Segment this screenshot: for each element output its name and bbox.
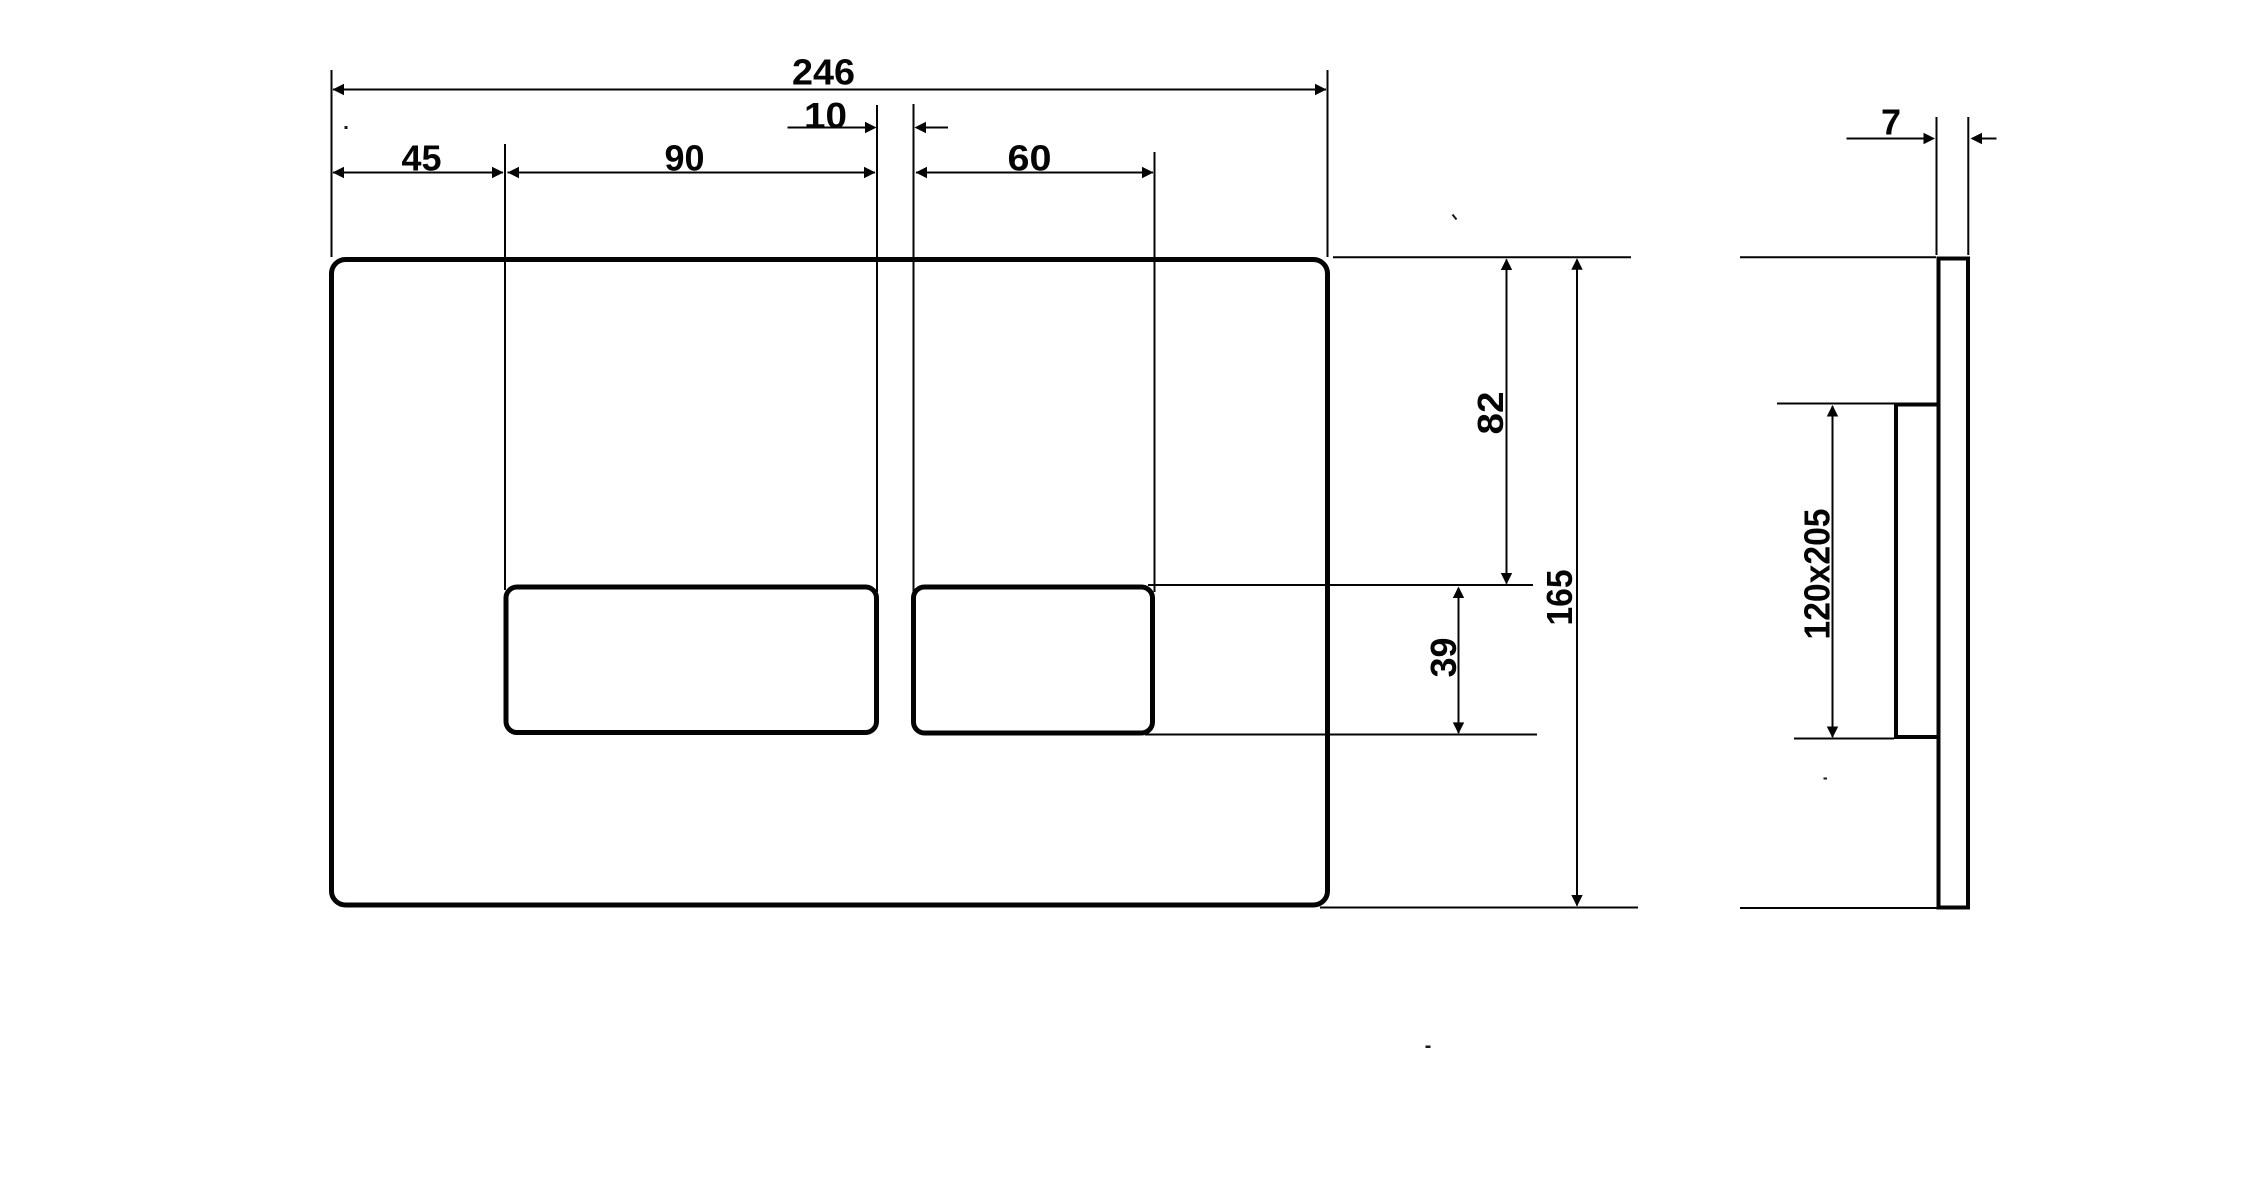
svg-text:7: 7: [1881, 102, 1901, 143]
svg-text:39: 39: [1423, 638, 1464, 678]
svg-text:90: 90: [665, 137, 705, 178]
svg-text:45: 45: [402, 137, 442, 178]
svg-text:120x205: 120x205: [1797, 509, 1838, 640]
svg-text:10: 10: [804, 95, 847, 136]
svg-text:246: 246: [792, 51, 855, 92]
svg-text:82: 82: [1470, 392, 1511, 435]
svg-text:165: 165: [1539, 570, 1580, 626]
svg-text:60: 60: [1008, 137, 1052, 178]
